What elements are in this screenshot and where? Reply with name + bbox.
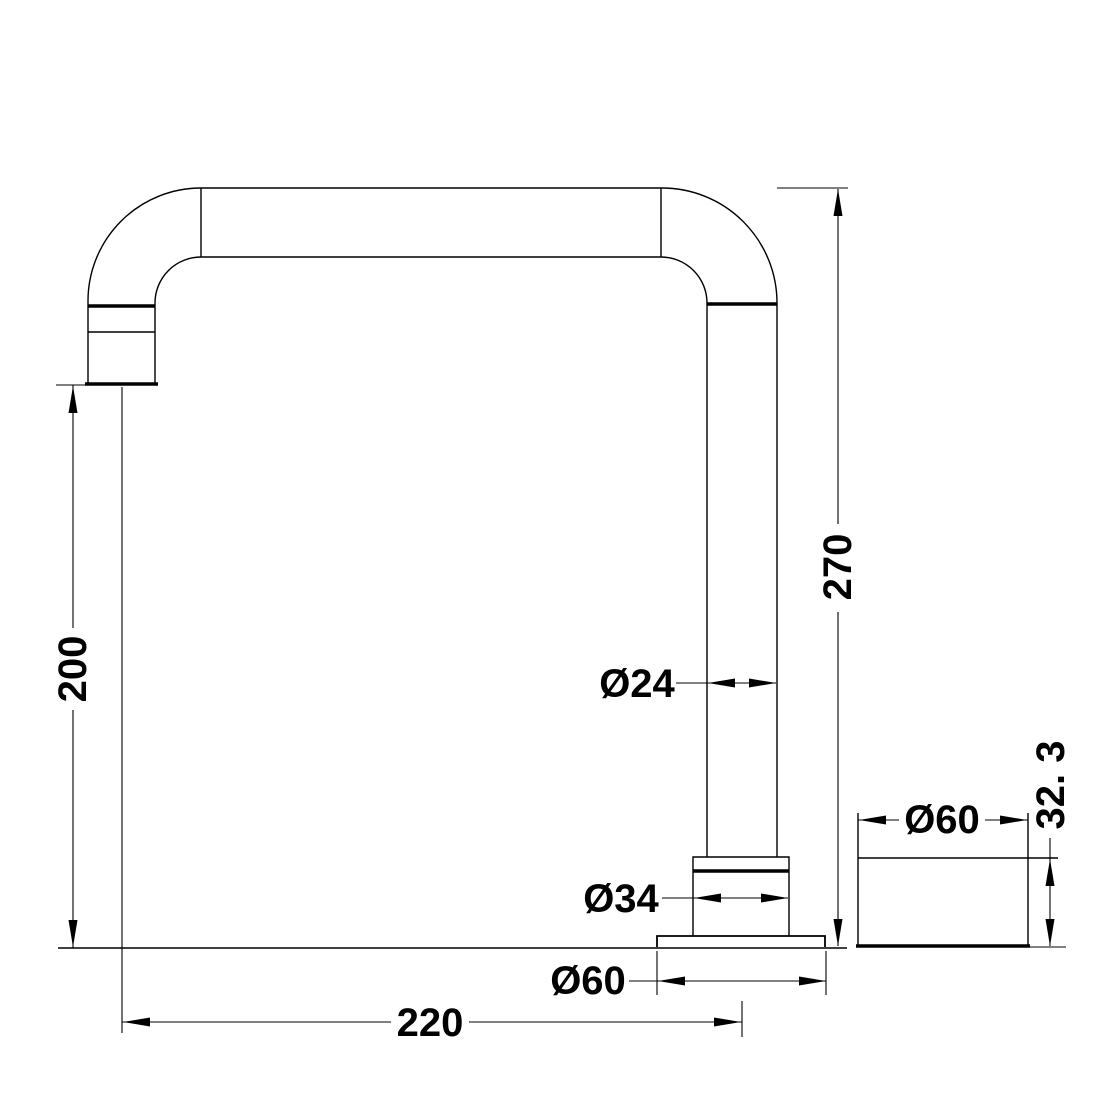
dim-323-label: 32. 3: [1029, 741, 1073, 830]
canvas-background: [0, 0, 1109, 1109]
dim-24-label: Ø24: [599, 662, 675, 706]
dim-60s-label: Ø60: [904, 798, 980, 842]
dim-220-label: 220: [397, 1001, 464, 1045]
dim-200-label: 200: [51, 636, 95, 703]
dim-34-label: Ø34: [583, 877, 659, 921]
dim-270-label: 270: [816, 534, 860, 601]
dim-60-label: Ø60: [550, 959, 626, 1003]
faucet-technical-drawing: 200 270 Ø24 Ø34 Ø60 220: [0, 0, 1109, 1109]
